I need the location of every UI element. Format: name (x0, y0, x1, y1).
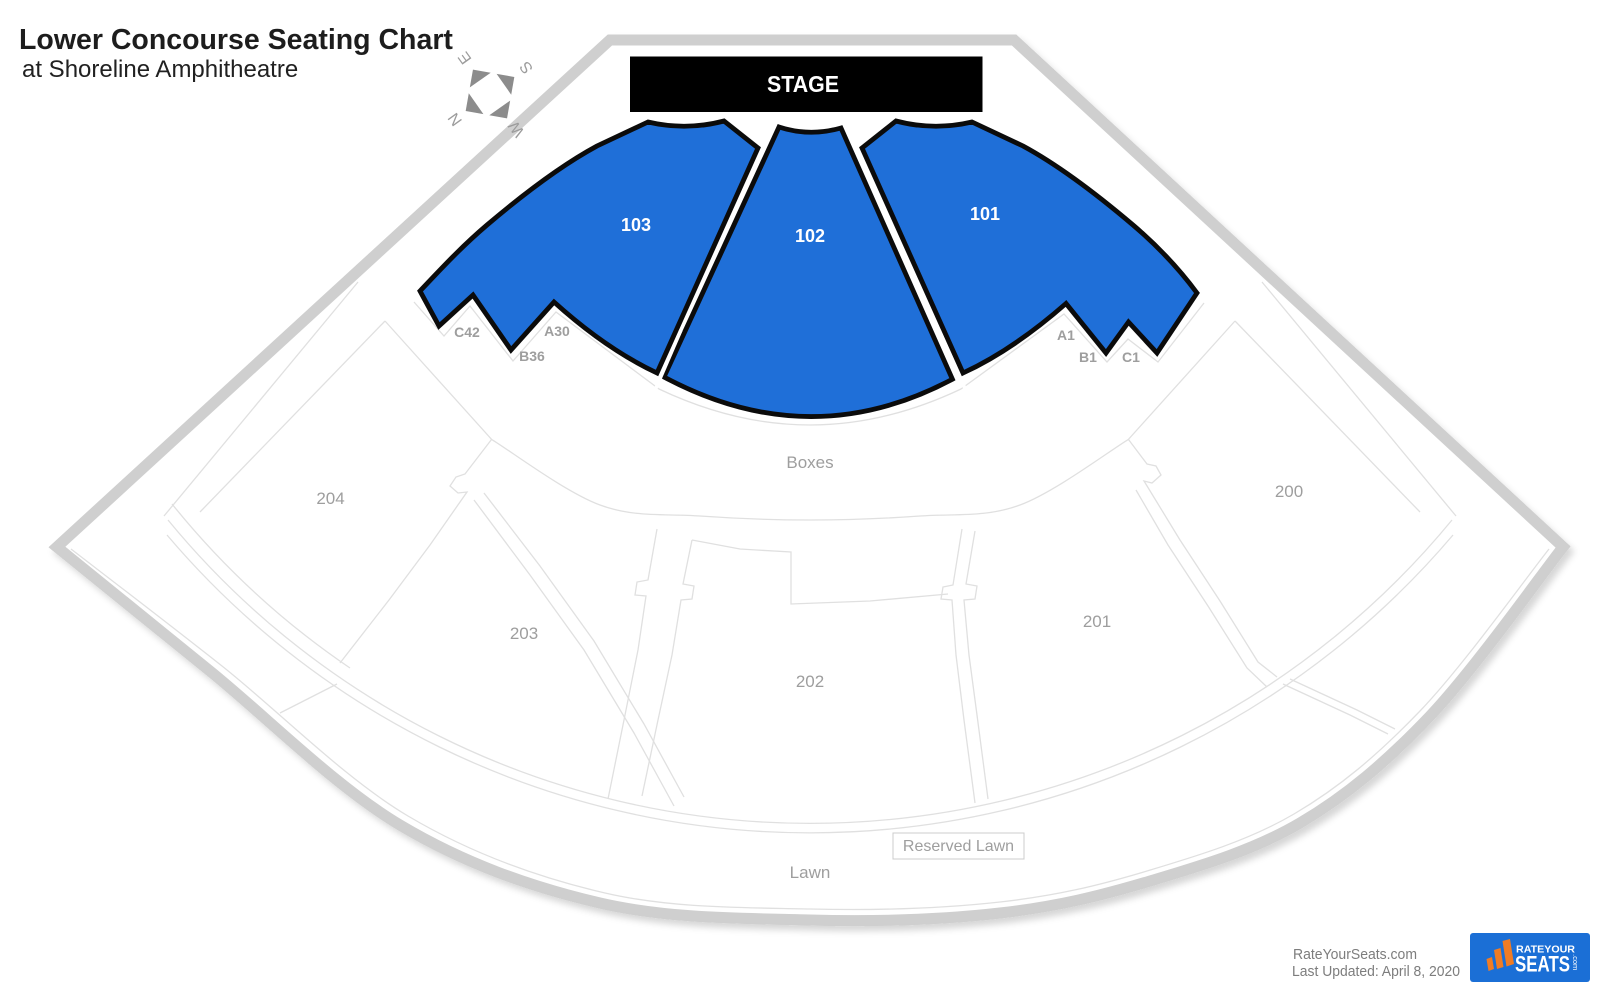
svg-text:C1: C1 (1122, 349, 1140, 365)
svg-text:201: 201 (1083, 612, 1111, 631)
svg-text:102: 102 (795, 226, 825, 246)
svg-text:Reserved Lawn: Reserved Lawn (903, 838, 1014, 855)
svg-text:.com: .com (1571, 954, 1580, 970)
svg-text:SEATS: SEATS (1515, 952, 1570, 977)
svg-text:A30: A30 (544, 323, 570, 339)
svg-text:204: 204 (316, 489, 344, 508)
svg-text:200: 200 (1275, 482, 1303, 501)
svg-text:Lower Concourse Seating Chart: Lower Concourse Seating Chart (19, 24, 453, 56)
svg-text:Lawn: Lawn (790, 863, 831, 882)
svg-text:Last Updated: April 8, 2020: Last Updated: April 8, 2020 (1292, 963, 1460, 980)
svg-text:C42: C42 (454, 324, 480, 340)
svg-text:202: 202 (796, 672, 824, 691)
svg-text:203: 203 (510, 624, 538, 643)
svg-text:103: 103 (621, 215, 651, 235)
svg-text:A1: A1 (1057, 327, 1075, 343)
svg-text:STAGE: STAGE (767, 71, 839, 97)
svg-text:B36: B36 (519, 348, 545, 364)
svg-text:Boxes: Boxes (786, 453, 833, 472)
svg-text:at Shoreline Amphitheatre: at Shoreline Amphitheatre (22, 56, 298, 83)
svg-text:B1: B1 (1079, 349, 1097, 365)
svg-text:101: 101 (970, 204, 1000, 224)
svg-text:RateYourSeats.com: RateYourSeats.com (1293, 946, 1417, 963)
